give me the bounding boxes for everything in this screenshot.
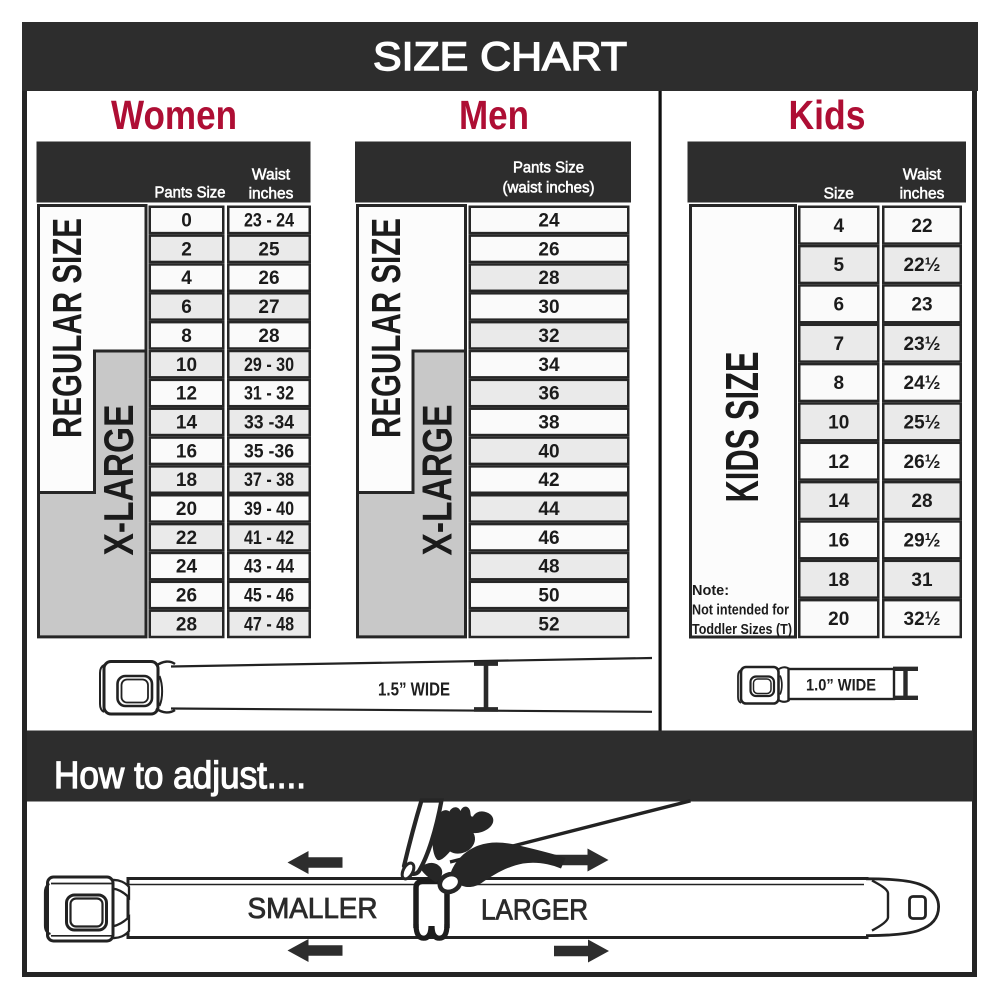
- svg-text:26: 26: [258, 268, 279, 289]
- svg-text:18: 18: [176, 470, 197, 491]
- svg-text:X-LARGE: X-LARGE: [414, 405, 461, 556]
- svg-text:SIZE CHART: SIZE CHART: [373, 35, 627, 79]
- svg-text:24: 24: [538, 211, 560, 232]
- svg-text:KIDS SIZE: KIDS SIZE: [716, 352, 768, 503]
- svg-text:Size: Size: [824, 186, 854, 203]
- svg-text:How to adjust....: How to adjust....: [54, 755, 306, 797]
- svg-text:29 - 30: 29 - 30: [244, 355, 294, 376]
- svg-text:20: 20: [828, 609, 849, 630]
- svg-text:2: 2: [181, 239, 192, 260]
- svg-text:22: 22: [176, 528, 197, 549]
- svg-text:30: 30: [538, 297, 559, 318]
- svg-text:43 - 44: 43 - 44: [244, 557, 294, 578]
- svg-text:LARGER: LARGER: [481, 895, 588, 927]
- svg-text:26: 26: [538, 239, 559, 260]
- svg-text:Pants Size: Pants Size: [513, 160, 584, 177]
- svg-text:22½: 22½: [904, 255, 941, 276]
- svg-text:28: 28: [258, 326, 279, 347]
- svg-text:25½: 25½: [904, 412, 941, 433]
- svg-text:18: 18: [828, 570, 849, 591]
- svg-text:23 - 24: 23 - 24: [244, 211, 294, 232]
- svg-text:41 - 42: 41 - 42: [244, 528, 294, 549]
- svg-text:42: 42: [538, 470, 559, 491]
- svg-text:33 -34: 33 -34: [244, 412, 294, 433]
- svg-text:22: 22: [911, 216, 932, 237]
- svg-text:12: 12: [176, 384, 197, 405]
- svg-text:47 - 48: 47 - 48: [244, 614, 294, 635]
- svg-text:31 - 32: 31 - 32: [244, 384, 294, 405]
- svg-text:20: 20: [176, 499, 197, 520]
- svg-text:24½: 24½: [904, 373, 941, 394]
- svg-text:SMALLER: SMALLER: [248, 893, 378, 925]
- svg-text:Toddler Sizes (T): Toddler Sizes (T): [692, 622, 792, 638]
- svg-text:0: 0: [181, 211, 192, 232]
- svg-text:Waist: Waist: [903, 167, 942, 184]
- svg-text:4: 4: [833, 216, 844, 237]
- svg-text:27: 27: [258, 297, 279, 318]
- svg-text:38: 38: [538, 412, 559, 433]
- svg-text:6: 6: [833, 294, 844, 315]
- svg-text:28: 28: [911, 491, 932, 512]
- svg-text:Pants Size: Pants Size: [155, 185, 226, 202]
- svg-text:12: 12: [828, 452, 849, 473]
- svg-text:inches: inches: [900, 186, 945, 203]
- svg-text:34: 34: [538, 355, 560, 376]
- svg-text:16: 16: [828, 530, 849, 551]
- svg-text:32: 32: [538, 326, 559, 347]
- svg-text:25: 25: [258, 239, 280, 260]
- svg-text:10: 10: [176, 355, 197, 376]
- svg-text:28: 28: [538, 268, 559, 289]
- svg-text:Not intended for: Not intended for: [692, 603, 789, 619]
- svg-text:6: 6: [181, 297, 192, 318]
- svg-text:8: 8: [181, 326, 192, 347]
- svg-text:7: 7: [833, 334, 844, 355]
- svg-text:52: 52: [538, 614, 559, 635]
- svg-text:45 - 46: 45 - 46: [244, 586, 294, 607]
- svg-text:46: 46: [538, 528, 559, 549]
- svg-text:23½: 23½: [904, 334, 941, 355]
- svg-text:4: 4: [181, 268, 192, 289]
- svg-text:24: 24: [176, 557, 198, 578]
- svg-text:10: 10: [828, 412, 849, 433]
- svg-text:28: 28: [176, 614, 197, 635]
- svg-text:REGULAR SIZE: REGULAR SIZE: [363, 218, 409, 438]
- svg-text:50: 50: [538, 586, 559, 607]
- svg-text:23: 23: [911, 294, 932, 315]
- svg-text:Note:: Note:: [692, 583, 729, 599]
- svg-text:39 - 40: 39 - 40: [244, 499, 294, 520]
- svg-text:26½: 26½: [904, 452, 941, 473]
- svg-text:8: 8: [833, 373, 844, 394]
- svg-text:40: 40: [538, 441, 559, 462]
- svg-text:Women: Women: [111, 92, 237, 138]
- svg-text:35 -36: 35 -36: [244, 441, 294, 462]
- svg-text:Waist: Waist: [252, 167, 291, 184]
- svg-text:29½: 29½: [904, 530, 941, 551]
- svg-text:Men: Men: [459, 92, 529, 138]
- svg-text:Kids: Kids: [789, 92, 866, 138]
- svg-text:1.0” WIDE: 1.0” WIDE: [806, 676, 876, 695]
- svg-text:X-LARGE: X-LARGE: [95, 405, 142, 556]
- svg-text:32½: 32½: [904, 609, 941, 630]
- svg-text:16: 16: [176, 441, 197, 462]
- svg-text:1.5” WIDE: 1.5” WIDE: [378, 680, 450, 700]
- svg-text:(waist inches): (waist inches): [503, 180, 595, 197]
- svg-text:26: 26: [176, 586, 197, 607]
- svg-text:inches: inches: [249, 186, 294, 203]
- svg-text:5: 5: [833, 255, 844, 276]
- svg-text:14: 14: [176, 412, 198, 433]
- svg-text:36: 36: [538, 384, 559, 405]
- svg-text:48: 48: [538, 557, 559, 578]
- svg-text:REGULAR SIZE: REGULAR SIZE: [44, 218, 90, 438]
- svg-text:31: 31: [911, 570, 933, 591]
- svg-text:37 - 38: 37 - 38: [244, 470, 294, 491]
- svg-text:14: 14: [828, 491, 850, 512]
- svg-text:44: 44: [538, 499, 560, 520]
